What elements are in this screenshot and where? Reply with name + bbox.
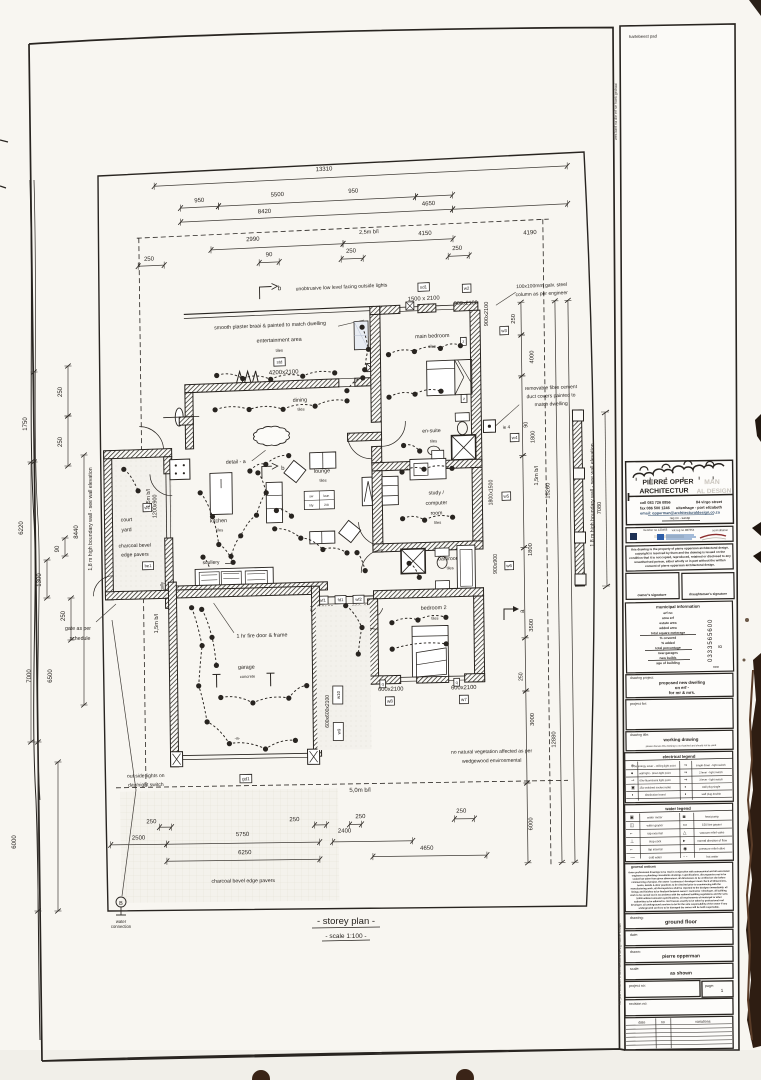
svg-text:gate as per: gate as per (65, 626, 91, 632)
svg-text:◖: ◖ (631, 792, 633, 797)
svg-text:◫: ◫ (630, 823, 634, 828)
svg-text:tiles: tiles (319, 478, 326, 483)
svg-text:reg no - sacap: reg no - sacap (670, 516, 691, 520)
svg-text:90: 90 (55, 545, 61, 552)
svg-text:4650: 4650 (422, 201, 436, 208)
svg-text:1750: 1750 (23, 417, 29, 431)
svg-text:be1: be1 (144, 563, 152, 568)
svg-text:150 litre geyser: 150 litre geyser (702, 822, 722, 826)
svg-text:hot water: hot water (706, 854, 718, 858)
svg-text:tiles: tiles (297, 406, 304, 411)
svg-text:250: 250 (519, 672, 525, 681)
svg-text:z: z (462, 339, 464, 344)
svg-text:250: 250 (456, 809, 467, 815)
svg-text:pressure relief valve: pressure relief valve (699, 846, 725, 850)
svg-text:250: 250 (346, 248, 357, 254)
svg-text:ground floor: ground floor (665, 919, 698, 925)
svg-text:wf2: wf2 (355, 597, 362, 602)
svg-text:cell 083 726 0856: cell 083 726 0856 (640, 501, 671, 505)
svg-text:ie 4: ie 4 (503, 424, 511, 429)
svg-text:2 lever - light switch: 2 lever - light switch (699, 770, 723, 774)
svg-text:▣: ▣ (631, 785, 635, 790)
svg-text:250: 250 (58, 386, 64, 397)
svg-text:municipal information: municipal information (656, 604, 700, 610)
svg-text:250: 250 (452, 246, 463, 252)
svg-text:15260: 15260 (545, 483, 551, 499)
svg-text:250: 250 (61, 610, 67, 621)
svg-text:250: 250 (355, 814, 366, 820)
svg-text:3000: 3000 (530, 713, 536, 726)
svg-text:concrete: concrete (240, 674, 256, 679)
svg-text:connection: connection (111, 924, 132, 929)
svg-text:schedule: schedule (70, 636, 91, 642)
svg-text:- storey plan -: - storey plan - (317, 916, 375, 927)
svg-text:12880: 12880 (551, 731, 557, 747)
svg-text:fax 086 500 1246: fax 086 500 1246 (640, 506, 670, 510)
svg-text:250: 250 (511, 314, 517, 324)
svg-text:2990: 2990 (246, 237, 260, 244)
svg-text:tiles: tiles (447, 565, 454, 570)
svg-text:tiles: tiles (434, 520, 441, 525)
svg-text:water geyser: water geyser (647, 823, 664, 827)
svg-text:cold water: cold water (649, 855, 662, 859)
svg-text:drawing title:: drawing title: (630, 733, 649, 737)
svg-text:1,5m b/l: 1,5m b/l (154, 614, 160, 634)
svg-text:no: no (661, 1020, 665, 1024)
svg-text:project for:: project for: (630, 702, 647, 706)
svg-text:◙: ◙ (683, 814, 686, 819)
svg-text:w7: w7 (461, 697, 467, 702)
svg-text:for mr & mrs.: for mr & mrs. (669, 690, 695, 695)
svg-text:estate area: estate area (659, 621, 676, 625)
svg-text:tiles: tiles (429, 344, 437, 349)
svg-text:3 lever - light switch: 3 lever - light switch (699, 777, 723, 781)
svg-text:as shown: as shown (670, 970, 692, 976)
svg-text:w8: w8 (387, 699, 393, 704)
svg-text:scale:: scale: (630, 967, 639, 971)
svg-text:1300: 1300 (37, 573, 43, 587)
svg-text:charcoal bevel edge pavers: charcoal bevel edge pavers (211, 878, 275, 885)
svg-text:study /: study / (429, 490, 445, 496)
svg-text:water meter: water meter (647, 815, 662, 819)
svg-text:draughtsman's signature: draughtsman's signature (689, 592, 727, 597)
svg-text:tiles: tiles (216, 527, 223, 532)
svg-text:tiles: tiles (431, 616, 438, 621)
svg-text:▸: ▸ (683, 838, 685, 843)
svg-text:owner's signature: owner's signature (638, 593, 667, 597)
svg-text:- scale 1:100 -: - scale 1:100 - (325, 933, 366, 940)
svg-text:tiles: tiles (430, 438, 437, 443)
svg-text:84 virgo street: 84 virgo street (696, 500, 723, 504)
svg-text:w4: w4 (512, 435, 518, 440)
svg-text:date:: date: (630, 933, 638, 937)
svg-text:general notices: general notices (631, 865, 656, 869)
svg-text:600x600x2100: 600x600x2100 (325, 695, 331, 728)
svg-text:6250: 6250 (238, 850, 252, 856)
svg-text:6000: 6000 (529, 817, 535, 830)
svg-text:950: 950 (194, 198, 205, 205)
svg-text:% added: % added (661, 641, 675, 645)
svg-text:en-suite: en-suite (422, 428, 441, 435)
svg-text:detail - a: detail - a (226, 459, 246, 466)
svg-text:out side lights on: out side lights on (127, 773, 165, 780)
svg-text:ldy: ldy (309, 503, 314, 507)
svg-text:member no 123456: member no 123456 (643, 528, 668, 532)
svg-text:7080: 7080 (597, 502, 603, 514)
svg-text:900x900: 900x900 (493, 554, 499, 574)
svg-text:revision no:: revision no: (629, 1002, 647, 1006)
svg-text:15a switched socket outlet: 15a switched socket outlet (639, 785, 671, 789)
svg-text:drawing project:: drawing project: (630, 676, 654, 680)
svg-text:wall plug single: wall plug single (702, 785, 721, 789)
svg-text:water legend: water legend (664, 806, 691, 811)
svg-text:page:: page: (705, 984, 714, 988)
svg-text:4000: 4000 (530, 351, 536, 364)
svg-text:pierre opperman: pierre opperman (662, 953, 700, 960)
svg-text:court: court (121, 517, 133, 523)
svg-text:std: std (276, 359, 283, 364)
svg-text:250: 250 (289, 817, 300, 823)
svg-text:5750: 5750 (236, 832, 250, 838)
svg-text:2400: 2400 (338, 828, 352, 834)
svg-text:computer: computer (425, 500, 447, 507)
svg-text:wf1: wf1 (319, 598, 326, 603)
svg-text:900x2100: 900x2100 (454, 300, 478, 307)
svg-text:90: 90 (266, 252, 274, 258)
svg-text:2500: 2500 (132, 835, 146, 841)
svg-text:lounge: lounge (314, 468, 330, 475)
svg-text:tiles: tiles (276, 348, 284, 353)
svg-text:1 hr fire door & frame: 1 hr fire door & frame (236, 632, 287, 639)
svg-text:day/night switch: day/night switch (128, 782, 164, 789)
svg-text:8420: 8420 (258, 209, 272, 216)
svg-text:hartebeest pad: hartebeest pad (629, 34, 658, 39)
svg-text:file path location c:\archite: file path location c:\architectural desi… (618, 923, 622, 1005)
svg-text:8440: 8440 (74, 525, 80, 539)
svg-text:w2: w2 (464, 286, 470, 291)
svg-text:wall plug double: wall plug double (702, 792, 722, 796)
svg-text:◉: ◉ (683, 846, 687, 851)
svg-text:electrical legend: electrical legend (663, 754, 696, 759)
svg-text:5,0m b/l: 5,0m b/l (349, 788, 370, 794)
svg-text:0333565600: 0333565600 (708, 619, 714, 662)
svg-text:scullery: scullery (203, 560, 221, 566)
svg-text:uitenhage - port elizabeth: uitenhage - port elizabeth (676, 505, 723, 510)
svg-text:w5: w5 (503, 494, 509, 499)
svg-text:room: room (430, 510, 442, 516)
svg-text:4190: 4190 (523, 230, 537, 237)
svg-text:250: 250 (58, 436, 64, 447)
svg-text:60w fluorescent light point: 60w fluorescent light point (639, 778, 670, 782)
svg-text:added area: added area (659, 626, 677, 630)
svg-text:7000: 7000 (27, 669, 33, 683)
svg-text:new garages: new garages (658, 651, 678, 655)
svg-text:1800: 1800 (531, 431, 537, 443)
svg-text:1,8 m high boundary wall - see: 1,8 m high boundary wall - see wall elev… (590, 443, 596, 546)
svg-text:match dwelling: match dwelling (535, 401, 568, 408)
svg-text:▭: ▭ (683, 822, 687, 827)
svg-text:MAN: MAN (704, 479, 720, 486)
svg-text:1,5m b/l: 1,5m b/l (146, 489, 152, 507)
svg-text:-a-: -a- (235, 735, 241, 740)
svg-text:area erf: area erf (662, 616, 675, 620)
svg-text:w6: w6 (506, 563, 512, 568)
svg-text:tap internal: tap internal (648, 847, 663, 851)
svg-text:90: 90 (523, 422, 529, 428)
svg-text:dining: dining (293, 397, 308, 404)
svg-text:working drawing: working drawing (663, 737, 699, 743)
svg-text:stop cock: stop cock (649, 839, 662, 843)
svg-text:bedroom 2: bedroom 2 (421, 605, 447, 612)
svg-text:wes kant na die erf se hoe: wes kant na die erf se hoek gedraai (614, 83, 618, 140)
svg-text:250: 250 (144, 256, 155, 262)
svg-text:—: — (630, 855, 635, 860)
svg-text:1200x900: 1200x900 (152, 494, 158, 518)
svg-text:w3: w3 (501, 328, 507, 333)
svg-text:6000: 6000 (12, 835, 18, 849)
svg-text:normal direction of flow: normal direction of flow (697, 838, 728, 842)
svg-text:age of building: age of building (656, 661, 680, 665)
svg-text:single down - light switch: single down - light switch (696, 763, 726, 767)
svg-text:B: B (119, 901, 123, 907)
svg-text:gully: gully (159, 581, 164, 591)
svg-text:6500: 6500 (48, 669, 54, 683)
svg-text:gd1: gd1 (242, 776, 250, 781)
svg-text:vat reg no 987654: vat reg no 987654 (672, 528, 695, 532)
svg-text:fd1: fd1 (338, 597, 345, 602)
svg-text:3500: 3500 (529, 619, 535, 632)
svg-text:edge pavers: edge pavers (121, 552, 149, 559)
svg-text:⊥: ⊥ (630, 839, 634, 844)
svg-text:erf no: erf no (663, 611, 672, 615)
svg-text:6220: 6220 (19, 521, 25, 535)
svg-text:wedgewood environmental: wedgewood environmental (462, 758, 522, 765)
svg-text:1,8 m high boundary wall - see: 1,8 m high boundary wall - see wall elev… (88, 467, 94, 570)
svg-text:accreditation: accreditation (712, 528, 728, 532)
svg-text:variations: variations (695, 1020, 711, 1024)
svg-text:5500: 5500 (271, 192, 285, 199)
svg-text:◗: ◗ (684, 791, 686, 796)
svg-text:1,5m b/l: 1,5m b/l (534, 466, 540, 486)
svg-text:PIERRE OPPER: PIERRE OPPER (642, 479, 693, 487)
svg-text:4650: 4650 (420, 846, 434, 852)
svg-text:▣: ▣ (630, 815, 634, 820)
svg-text:date: date (638, 1020, 645, 1024)
svg-text:- -: - - (683, 854, 688, 859)
svg-text:4150: 4150 (418, 231, 432, 238)
svg-text:charcoal bevel: charcoal bevel (119, 543, 151, 550)
svg-text:% covered: % covered (660, 636, 677, 640)
svg-text:sd1: sd1 (420, 284, 428, 289)
svg-text:w9: w9 (336, 728, 341, 734)
svg-text:◗: ◗ (684, 784, 686, 789)
svg-text:heat pump: heat pump (705, 814, 719, 818)
svg-text:24t: 24t (324, 503, 329, 507)
svg-text:drawn:: drawn: (630, 950, 641, 954)
svg-text:8: 8 (718, 645, 724, 648)
svg-text:tap external: tap external (647, 831, 663, 835)
svg-text:5a energy saver - ceiling ligh: 5a energy saver - ceiling light point (634, 764, 676, 769)
svg-text:z: z (463, 396, 465, 401)
svg-text:900x2100: 900x2100 (484, 302, 490, 327)
svg-text:project no:: project no: (629, 984, 646, 988)
svg-text:q: q (381, 681, 383, 686)
svg-text:1800x1500: 1800x1500 (488, 480, 494, 506)
svg-text:13310: 13310 (316, 166, 334, 173)
svg-text:drawing:: drawing: (630, 916, 644, 920)
svg-text:garage: garage (238, 665, 255, 671)
svg-text:nee: nee (713, 665, 719, 669)
svg-text:new builds: new builds (659, 656, 676, 660)
svg-text:q: q (455, 680, 457, 685)
svg-text:yard: yard (121, 527, 131, 533)
svg-text:laun: laun (323, 494, 329, 498)
svg-text:wall light - down light point: wall light - down light point (639, 771, 671, 775)
svg-text:2,5m b/l: 2,5m b/l (359, 229, 379, 236)
svg-text:w10: w10 (336, 690, 341, 699)
svg-text:vacuum relief valve: vacuum relief valve (700, 830, 725, 834)
svg-text:950: 950 (348, 188, 359, 195)
svg-text:ARCHITECTUR: ARCHITECTUR (639, 488, 688, 496)
svg-text:250: 250 (146, 819, 157, 825)
svg-text:distribution board: distribution board (645, 792, 666, 796)
svg-text:1800: 1800 (528, 543, 534, 556)
